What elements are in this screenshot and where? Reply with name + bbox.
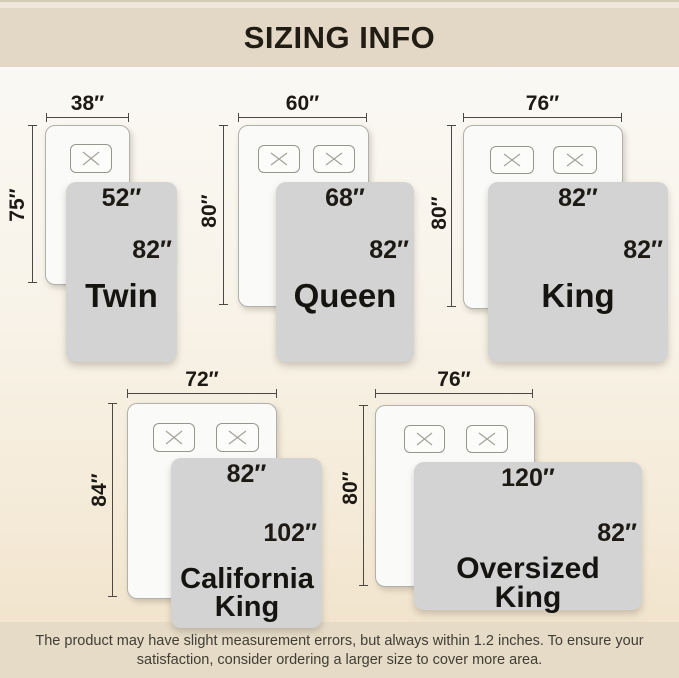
bed-length-dimension-line xyxy=(223,125,224,305)
size-name-label: King xyxy=(488,278,668,314)
cover-width-label: 82″ xyxy=(171,461,322,487)
bed-width-dimension-line xyxy=(127,393,277,394)
disclaimer-line-2: satisfaction, consider ordering a larger… xyxy=(137,651,542,669)
bed-length-dimension-line xyxy=(112,403,113,597)
pillow-x-icon xyxy=(258,145,300,173)
cover-width-label: 82″ xyxy=(488,185,668,211)
bed-length-label: 80″ xyxy=(198,189,220,233)
size-name-label: California King xyxy=(161,565,333,621)
pillow-x-icon xyxy=(216,423,259,452)
page-title: SIZING INFO xyxy=(244,20,436,56)
bed-length-label: 84″ xyxy=(88,468,110,512)
bed-width-label: 76″ xyxy=(375,368,533,390)
footer-band: The product may have slight measurement … xyxy=(0,622,679,678)
bed-length-dimension-line xyxy=(363,405,364,586)
cover-length-label: 82″ xyxy=(488,237,668,263)
pillow-x-icon xyxy=(490,146,534,174)
bed-width-label: 60″ xyxy=(238,92,367,114)
cover-length-label: 82″ xyxy=(276,237,414,263)
bed-width-label: 38″ xyxy=(46,92,129,114)
sizing-infographic: SIZING INFO 38″ 75″ 52″ 82″ Twin 60″ 80″… xyxy=(0,0,679,678)
bed-width-dimension-line xyxy=(238,117,367,118)
bed-length-dimension-line xyxy=(451,125,452,307)
cover-width-label: 120″ xyxy=(414,465,642,491)
pillow-x-icon xyxy=(153,423,195,452)
bed-width-dimension-line xyxy=(375,393,533,394)
size-name-label: Twin xyxy=(66,278,177,314)
pillow-x-icon xyxy=(466,425,508,453)
cover-length-label: 82″ xyxy=(414,520,642,546)
disclaimer-line-1: The product may have slight measurement … xyxy=(35,632,643,650)
bed-width-label: 76″ xyxy=(463,92,622,114)
pillow-x-icon xyxy=(313,145,355,173)
cover-width-label: 68″ xyxy=(276,185,414,211)
pillow-x-icon xyxy=(70,144,112,173)
cover-width-label: 52″ xyxy=(66,185,177,211)
bed-length-label: 75″ xyxy=(6,183,28,227)
size-name-label: Oversized King xyxy=(428,554,628,612)
pillow-x-icon xyxy=(404,425,445,453)
pillow-x-icon xyxy=(553,146,597,174)
header-band: SIZING INFO xyxy=(0,8,679,67)
bed-width-label: 72″ xyxy=(127,368,277,390)
cover-length-label: 82″ xyxy=(66,237,177,263)
bed-length-label: 80″ xyxy=(339,466,361,510)
bed-width-dimension-line xyxy=(463,117,622,118)
bed-length-dimension-line xyxy=(32,125,33,283)
cover-length-label: 102″ xyxy=(171,520,322,546)
bed-width-dimension-line xyxy=(46,117,129,118)
bed-length-label: 80″ xyxy=(428,191,450,235)
size-name-label: Queen xyxy=(276,278,414,314)
